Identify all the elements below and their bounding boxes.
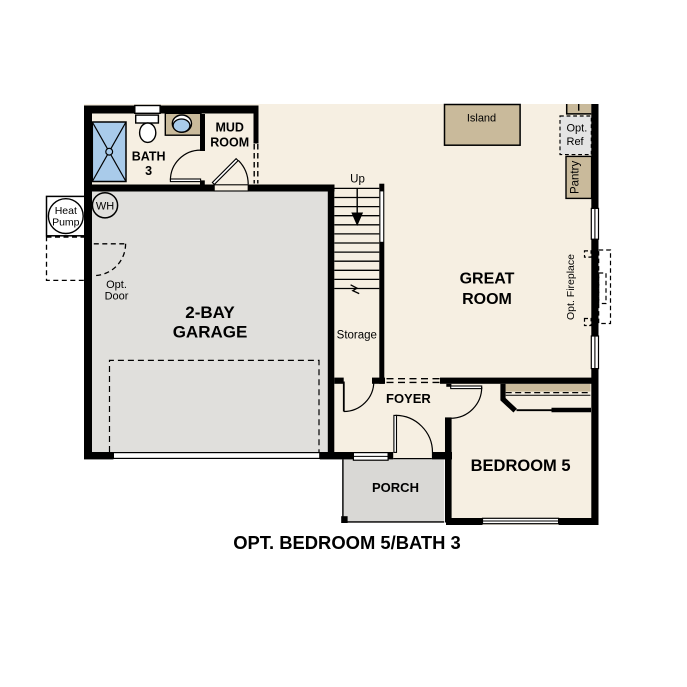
svg-text:Island: Island [467,113,496,125]
svg-text:WH: WH [96,200,114,212]
svg-text:Ref: Ref [567,136,585,148]
svg-text:GREAT: GREAT [460,271,515,288]
svg-text:Opt.: Opt. [106,279,127,291]
svg-text:2-BAY: 2-BAY [185,303,235,322]
svg-text:Opt. Fireplace: Opt. Fireplace [565,254,577,320]
svg-text:GARAGE: GARAGE [173,323,248,342]
svg-text:Heat: Heat [55,205,77,217]
svg-text:Pump: Pump [52,217,80,229]
svg-text:Up: Up [350,174,365,186]
svg-text:Pantry: Pantry [570,161,582,194]
svg-text:BEDROOM 5: BEDROOM 5 [471,457,571,475]
svg-text:Door: Door [105,291,129,303]
svg-text:ROOM: ROOM [210,136,249,150]
svg-text:BATH: BATH [132,150,166,164]
svg-text:Storage: Storage [337,330,377,342]
svg-text:Opt.: Opt. [567,123,588,135]
svg-text:OPT. BEDROOM 5/BATH 3: OPT. BEDROOM 5/BATH 3 [233,532,461,553]
svg-text:FOYER: FOYER [386,391,431,406]
svg-text:PORCH: PORCH [372,480,419,495]
svg-text:3: 3 [145,164,152,178]
svg-text:ROOM: ROOM [462,291,512,308]
svg-text:MUD: MUD [215,121,243,135]
